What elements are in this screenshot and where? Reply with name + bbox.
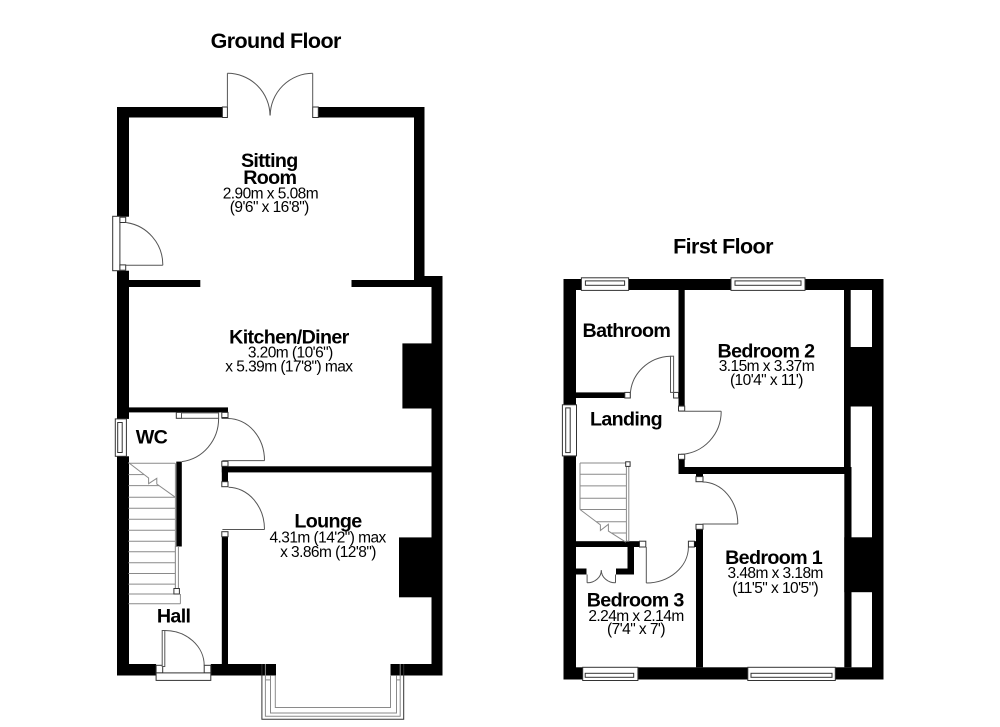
svg-text:x 5.39m (17'8") max: x 5.39m (17'8") max — [225, 359, 353, 376]
svg-text:(9'6" x 16'8"): (9'6" x 16'8") — [230, 199, 309, 216]
svg-text:WC: WC — [136, 427, 168, 449]
svg-text:x 3.86m (12'8"): x 3.86m (12'8") — [280, 544, 376, 561]
svg-text:(7'4" x 7'): (7'4" x 7') — [607, 621, 665, 638]
svg-text:(11'5" x 10'5"): (11'5" x 10'5") — [732, 580, 818, 597]
svg-text:Hall: Hall — [157, 606, 191, 628]
svg-text:(10'4" x 11'): (10'4" x 11') — [730, 372, 803, 389]
svg-text:Landing: Landing — [590, 408, 662, 430]
svg-text:First Floor: First Floor — [673, 235, 774, 259]
svg-text:Ground Floor: Ground Floor — [211, 29, 342, 53]
svg-text:Bathroom: Bathroom — [583, 320, 671, 342]
